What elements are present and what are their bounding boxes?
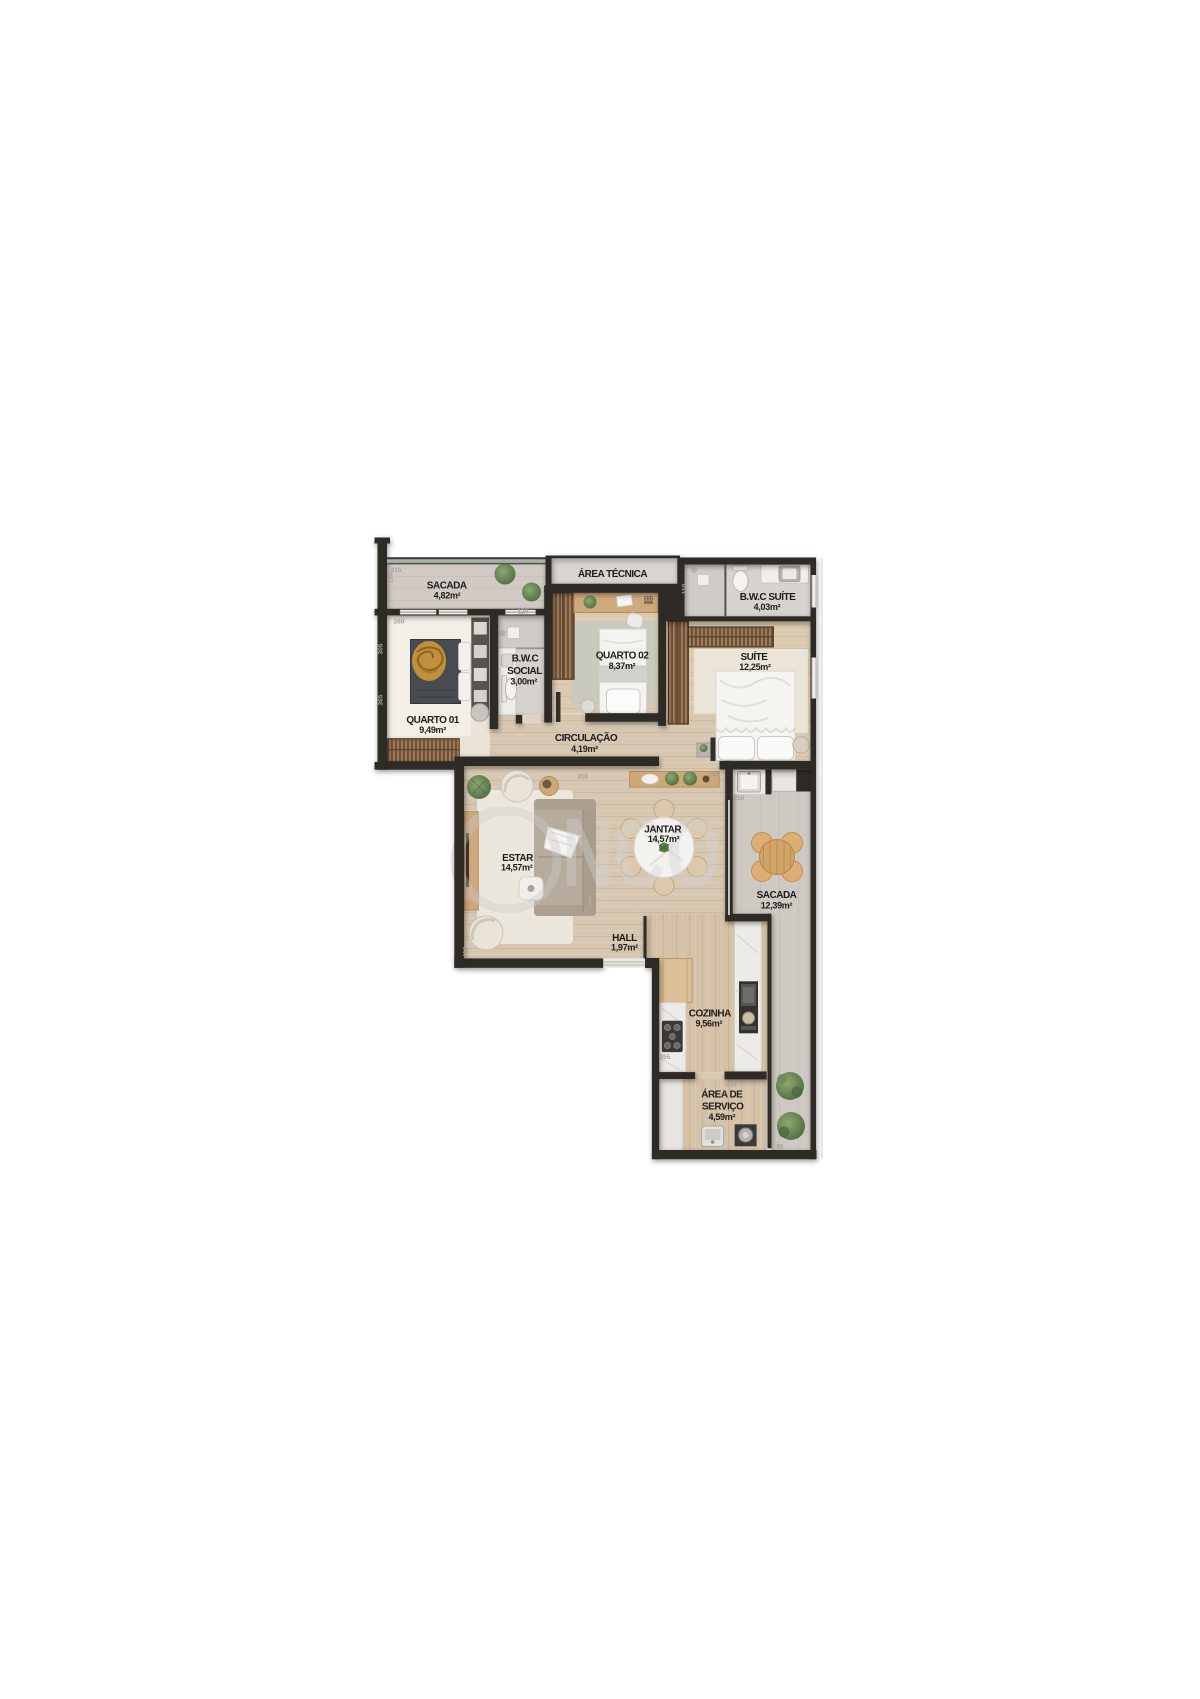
svg-text:310: 310 bbox=[577, 774, 588, 781]
svg-text:210: 210 bbox=[734, 795, 745, 802]
svg-text:305: 305 bbox=[378, 643, 385, 654]
svg-text:SUÍTE: SUÍTE bbox=[741, 650, 769, 663]
svg-text:4,59m²: 4,59m² bbox=[708, 1112, 735, 1122]
svg-text:4,03m²: 4,03m² bbox=[754, 602, 781, 612]
svg-text:9,49m²: 9,49m² bbox=[419, 725, 446, 735]
svg-text:B.W.C: B.W.C bbox=[512, 653, 539, 664]
svg-text:4,82m²: 4,82m² bbox=[434, 591, 461, 601]
svg-text:SERVIÇO: SERVIÇO bbox=[702, 1102, 744, 1113]
svg-text:310: 310 bbox=[644, 596, 655, 603]
svg-text:9,56m²: 9,56m² bbox=[695, 1019, 722, 1029]
svg-text:110: 110 bbox=[682, 583, 689, 594]
svg-text:115: 115 bbox=[388, 572, 395, 583]
svg-text:4,19m²: 4,19m² bbox=[571, 744, 598, 754]
svg-text:12,25m²: 12,25m² bbox=[739, 662, 771, 672]
svg-text:120: 120 bbox=[518, 609, 529, 616]
svg-text:12,39m²: 12,39m² bbox=[761, 901, 793, 911]
svg-text:365: 365 bbox=[378, 694, 385, 705]
svg-text:8,37m²: 8,37m² bbox=[609, 661, 636, 671]
svg-text:14,57m²: 14,57m² bbox=[648, 834, 680, 844]
svg-text:235: 235 bbox=[726, 1082, 737, 1089]
svg-text:85: 85 bbox=[776, 1144, 784, 1151]
svg-text:240: 240 bbox=[708, 772, 719, 779]
svg-text:255: 255 bbox=[660, 1054, 671, 1061]
svg-text:SACADA: SACADA bbox=[757, 890, 797, 901]
svg-text:CIRCULAÇÃO: CIRCULAÇÃO bbox=[555, 731, 618, 744]
svg-text:260: 260 bbox=[394, 619, 405, 626]
svg-text:410: 410 bbox=[463, 946, 470, 957]
svg-text:1,97m²: 1,97m² bbox=[611, 943, 638, 953]
svg-text:3,00m²: 3,00m² bbox=[510, 676, 537, 686]
svg-text:14,57m²: 14,57m² bbox=[501, 862, 533, 872]
svg-text:ÁREA DE: ÁREA DE bbox=[701, 1088, 743, 1101]
svg-text:IMÓVE: IMÓVE bbox=[588, 894, 670, 909]
svg-text:ÁREA TÉCNICA: ÁREA TÉCNICA bbox=[578, 567, 647, 580]
